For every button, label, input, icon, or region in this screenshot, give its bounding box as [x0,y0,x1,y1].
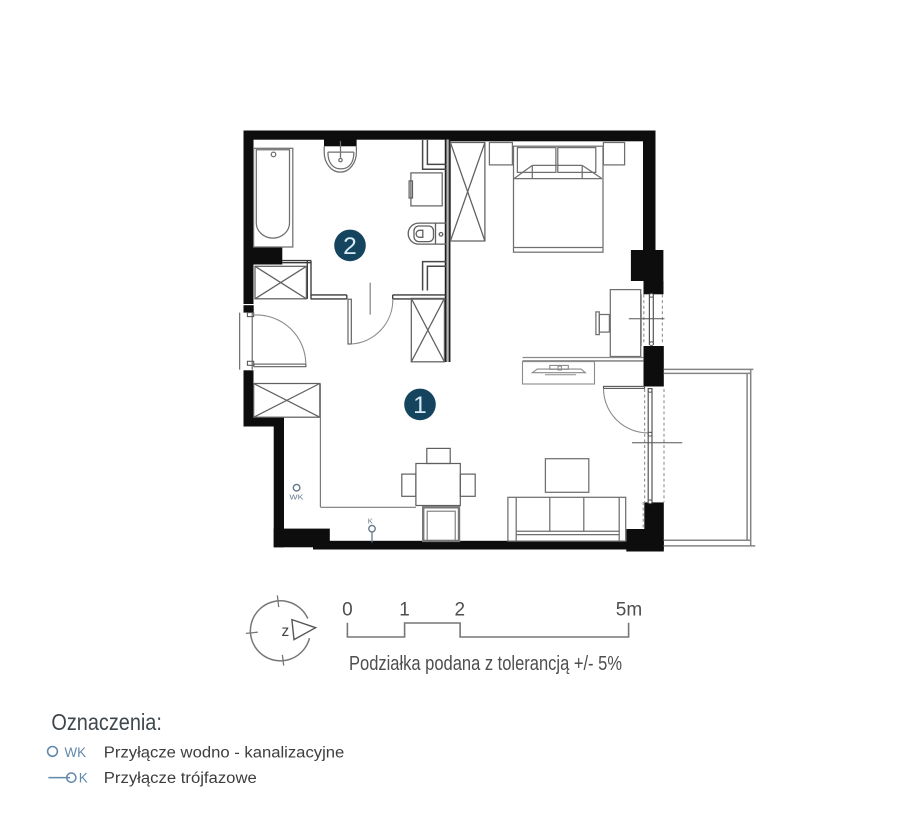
svg-text:K: K [368,517,373,526]
svg-text:0: 0 [342,600,353,621]
svg-text:Podziałka podana z tolerancją: Podziałka podana z tolerancją +/- 5% [349,653,622,675]
svg-text:2: 2 [455,600,466,621]
svg-text:z: z [282,623,290,640]
svg-text:WK: WK [289,492,303,501]
svg-text:K: K [79,771,88,786]
svg-text:1: 1 [413,392,427,419]
svg-text:WK: WK [65,745,87,760]
svg-text:Oznaczenia:: Oznaczenia: [51,709,161,735]
svg-text:5m: 5m [616,600,642,621]
svg-text:Przyłącze trójfazowe: Przyłącze trójfazowe [104,770,257,787]
svg-text:Przyłącze wodno - kanalizacyjn: Przyłącze wodno - kanalizacyjne [104,744,344,761]
svg-text:2: 2 [343,233,357,260]
svg-text:1: 1 [399,600,410,621]
